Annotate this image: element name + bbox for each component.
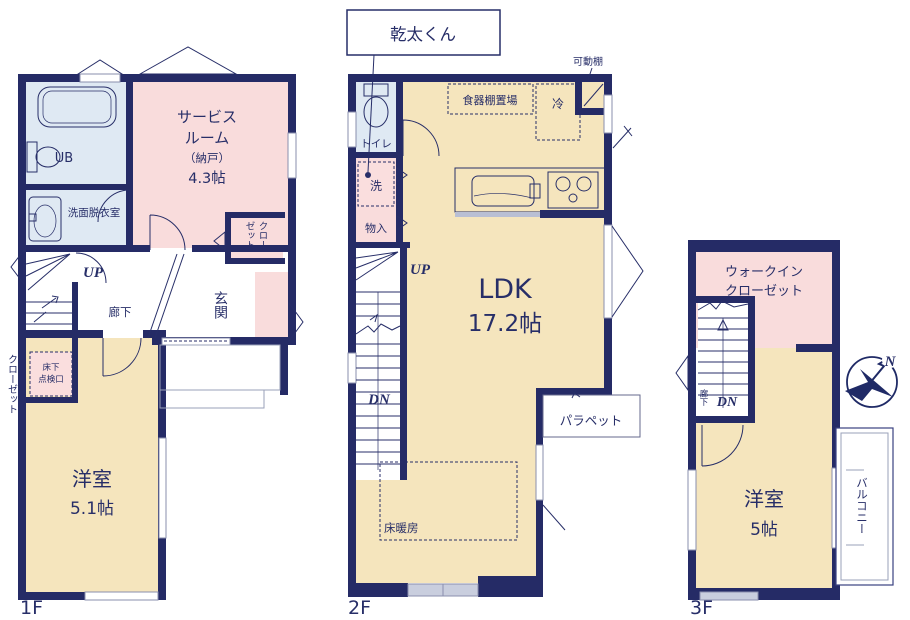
wic-label: クローゼット (725, 284, 803, 299)
cupboard-space-label: 食器棚置場 (463, 93, 518, 107)
porch-step (160, 390, 264, 408)
underfloor-hatch-label: 床下 (42, 362, 60, 373)
window (288, 133, 296, 178)
window (348, 353, 356, 383)
movable-shelf-label: 可動棚 (573, 55, 603, 68)
entrance-step-area (255, 272, 288, 338)
wall (126, 74, 133, 252)
stairs-up-label: UP (410, 262, 431, 278)
stairs-down-label: DN (367, 392, 391, 408)
stairs-2f (356, 252, 400, 470)
bedroom-1f-label: 洋室 (72, 467, 112, 491)
side-closet-label: クローゼット (6, 354, 18, 414)
wall (18, 74, 296, 82)
bedroom-1f-size: 5.1帖 (70, 499, 114, 519)
floor-1f: UB 洗面脱衣室 サービス ルーム （納戸） 4.3帖 クロー ゼット クローゼ… (6, 47, 304, 619)
window (604, 95, 612, 133)
window (85, 592, 158, 600)
bedroom-3f-size: 5帖 (750, 520, 778, 540)
entrance-divider-line (148, 254, 177, 338)
wall (478, 576, 543, 597)
wall (225, 212, 231, 264)
wall (26, 184, 126, 190)
wall (348, 583, 408, 597)
wall (72, 282, 78, 337)
floor-label-1f: 1F (20, 597, 43, 619)
ldk-area (403, 82, 604, 388)
compass-north-label: N (884, 354, 897, 370)
floor-3f: ウォークイン クローゼット 廊下 DN 洋室 5帖 バルコニー 3F (676, 240, 893, 619)
ldk-size: 17.2帖 (468, 311, 542, 337)
wall (348, 242, 410, 248)
counter-edge (540, 210, 612, 218)
wall (225, 258, 285, 264)
entrance-divider-line (155, 254, 184, 338)
window (159, 438, 166, 538)
wall (143, 330, 166, 338)
window (688, 470, 696, 550)
stairs-up-label: UP (83, 265, 104, 281)
toilet-label: トイレ (360, 138, 392, 150)
bay-window (612, 226, 643, 317)
floor-label-3f: 3F (690, 597, 713, 619)
fridge-label: 冷 (552, 97, 564, 111)
hallway-label: 廊下 (109, 305, 132, 319)
vent-arrow (676, 356, 688, 390)
service-room-label: ルーム (185, 129, 230, 147)
porch-step (160, 345, 280, 390)
wall (280, 345, 288, 395)
window (80, 74, 120, 82)
wall (72, 337, 78, 403)
window (536, 445, 543, 500)
laundry-label: 洗 (370, 179, 382, 193)
wall (796, 344, 840, 352)
wall (688, 416, 755, 423)
wall (18, 330, 103, 338)
counter-edge (455, 212, 540, 217)
entrance-label: 玄関 (212, 290, 228, 320)
wall (18, 397, 78, 403)
bedroom-3f-label: 洋室 (744, 487, 784, 511)
parapet-label: パラペット (560, 413, 623, 428)
storage-label: 物入 (365, 221, 387, 235)
door-swing-mark (543, 505, 565, 530)
ldk-area (403, 388, 536, 583)
bath-label: UB (55, 151, 73, 166)
service-room-label: （納戸） (184, 151, 230, 165)
callout-pointer-dot (365, 172, 371, 178)
roof-triangle-large (140, 47, 236, 74)
hallway-label: 廊下 (698, 388, 708, 407)
floor-label-2f: 2F (348, 597, 371, 619)
floor-plan-drawing: UB 洗面脱衣室 サービス ルーム （納戸） 4.3帖 クロー ゼット クローゼ… (0, 0, 910, 620)
floor-heating-label: 床暖房 (384, 521, 419, 535)
window (348, 112, 356, 147)
service-room-size: 4.3帖 (188, 170, 226, 187)
wall (688, 240, 840, 252)
closet-label: ゼット (244, 221, 256, 250)
bay-window-opening (604, 225, 612, 318)
wall (225, 212, 285, 218)
bedroom-3f-area (753, 348, 832, 588)
ldk-label: LDK (478, 274, 533, 305)
washroom-label: 洗面脱衣室 (68, 206, 121, 219)
wall (400, 248, 407, 480)
wall (348, 152, 403, 158)
wall (133, 245, 150, 252)
wall (748, 296, 755, 423)
stairs-1f (26, 254, 72, 324)
wic-label: ウォークイン (725, 265, 803, 280)
callout-label: 乾太くん (390, 25, 456, 44)
service-room-label: サービス (177, 108, 237, 126)
underfloor-hatch (30, 352, 72, 396)
balcony-label: バルコニー (855, 477, 869, 535)
wall (18, 245, 133, 252)
wall (396, 74, 403, 158)
underfloor-hatch-label: 点検口 (38, 374, 64, 385)
floor-plan: UB 洗面脱衣室 サービス ルーム （納戸） 4.3帖 クロー ゼット クローゼ… (0, 0, 910, 620)
floor-2f: 乾太くん トイレ 洗 物入 食器棚置場 冷 可動棚 LDK 17.2帖 UP D… (347, 10, 643, 619)
roof-triangle-small (78, 60, 122, 74)
wall (348, 74, 612, 82)
compass: N (845, 352, 898, 407)
closet-label: クロー (257, 221, 268, 250)
stairs-down-label: DN (716, 395, 738, 410)
